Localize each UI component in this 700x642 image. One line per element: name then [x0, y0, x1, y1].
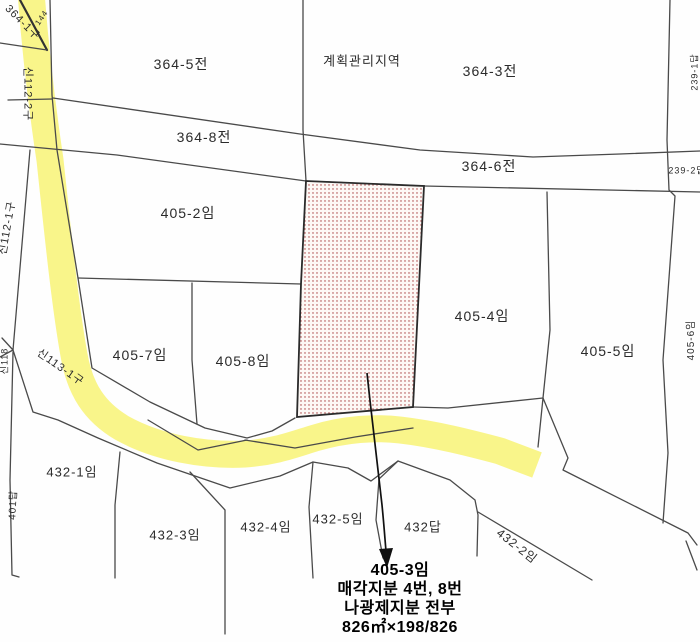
parcel-label-364-6: 364-6전: [462, 159, 517, 173]
parcel-label-sin118: 신118: [1, 348, 10, 375]
parcel-label-405-4: 405-4임: [455, 309, 510, 323]
annotation-sale-shares: 매각지분 4번, 8번: [280, 580, 520, 599]
parcel-label-432-3: 432-3임: [149, 529, 200, 542]
parcel-label-432-5: 432-5임: [312, 513, 363, 526]
parcel-label-364-5: 364-5전: [154, 57, 209, 71]
parcel-label-405-7: 405-7임: [113, 348, 168, 362]
parcel-label-405-8: 405-8임: [216, 354, 271, 368]
parcel-label-432-4: 432-4임: [240, 521, 291, 534]
parcel-label-405-6: 405-6임: [687, 320, 697, 361]
annotation-parcel-number: 405-3임: [280, 561, 520, 580]
subject-parcel-highlight: [297, 181, 424, 417]
parcel-label-405-5: 405-5임: [581, 344, 636, 358]
zoning-label: 계획관리지역: [323, 55, 401, 68]
parcel-label-239-1: 239-1답: [691, 53, 700, 90]
annotation-owner-share: 나광제지분 전부: [280, 599, 520, 618]
parcel-label-239-2: 239-2답: [668, 167, 700, 176]
road-highlight: [31, 0, 537, 465]
parcel-label-364-3: 364-3전: [463, 64, 518, 78]
parcel-label-364-8: 364-8전: [177, 130, 232, 144]
road-label-sin112-2gu: 신112-2구: [22, 67, 33, 122]
sale-annotation: 405-3임 매각지분 4번, 8번 나광제지분 전부 826㎡×198/826: [280, 561, 520, 637]
parcel-label-432: 432답: [404, 521, 442, 534]
parcel-label-432-1: 432-1임: [46, 466, 97, 479]
annotation-area-formula: 826㎡×198/826: [280, 618, 520, 637]
cadastral-map-svg: [0, 0, 700, 642]
parcel-label-401: 401답: [8, 490, 20, 520]
parcel-label-405-2: 405-2임: [161, 206, 216, 220]
cadastral-map: 364-1구 144 신112-2구 신112-1구 신113-1구 신118 …: [0, 0, 700, 642]
